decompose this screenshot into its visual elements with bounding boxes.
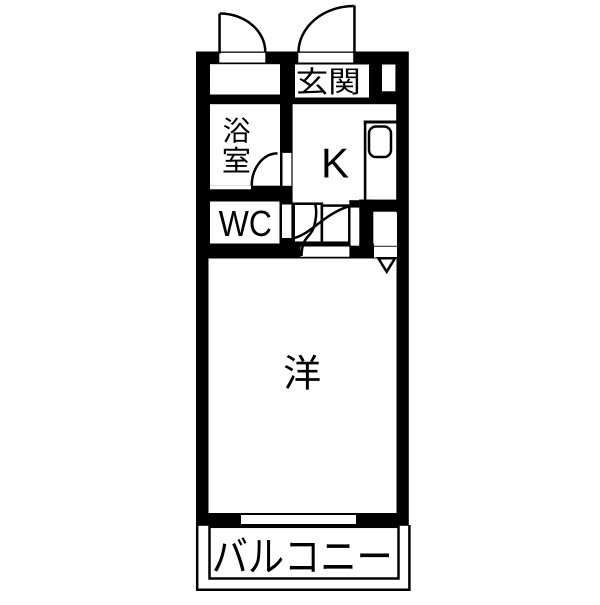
svg-text:WC: WC bbox=[219, 204, 272, 244]
svg-text:K: K bbox=[321, 140, 349, 187]
